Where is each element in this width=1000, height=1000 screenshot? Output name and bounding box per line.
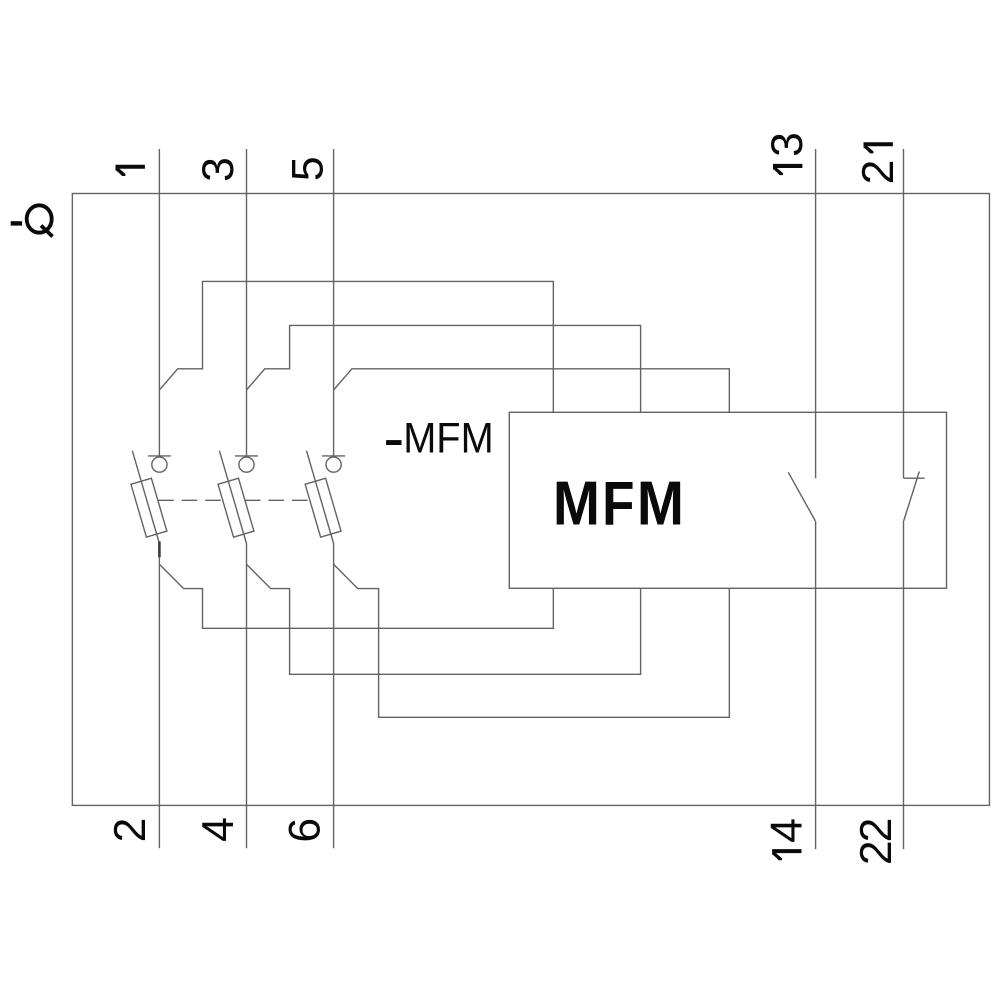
svg-text:F: F xyxy=(602,470,634,539)
svg-text:2: 2 xyxy=(852,840,901,865)
svg-text:4: 4 xyxy=(194,817,243,842)
svg-text:3: 3 xyxy=(194,157,243,182)
svg-text:2: 2 xyxy=(852,818,901,843)
svg-text:6: 6 xyxy=(281,818,330,843)
svg-text:4: 4 xyxy=(763,818,812,843)
svg-text:2: 2 xyxy=(854,160,903,185)
svg-text:5: 5 xyxy=(283,156,332,181)
svg-text:2: 2 xyxy=(106,818,155,843)
svg-text:MFM: MFM xyxy=(403,415,494,462)
svg-text:M: M xyxy=(637,468,684,538)
svg-text:M: M xyxy=(553,468,600,538)
svg-text:3: 3 xyxy=(763,132,812,157)
